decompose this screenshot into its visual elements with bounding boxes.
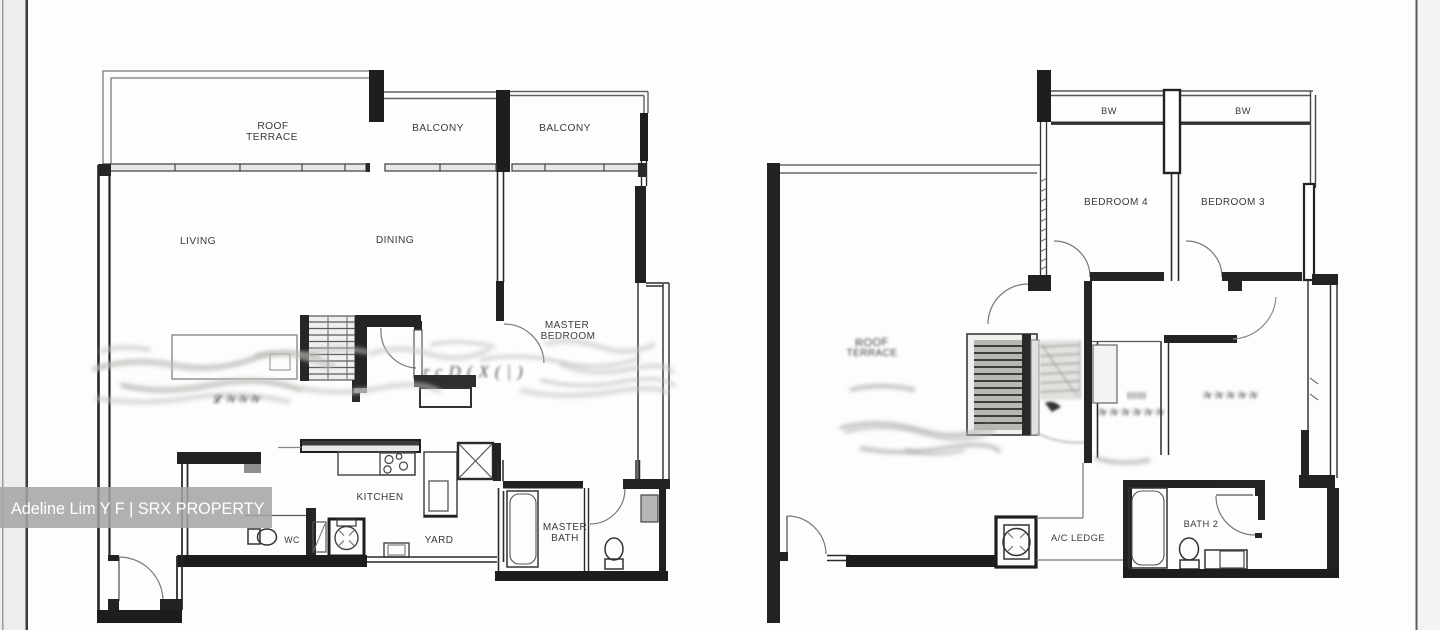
svg-text:DINING: DINING [376,235,414,246]
svg-text:Adeline Lim Y F | SRX PROPERTY: Adeline Lim Y F | SRX PROPERTY [11,500,265,518]
svg-text:IIIIII: IIIIII [1127,391,1147,402]
svg-text:rcD(X(|): rcD(X(|) [423,362,529,381]
svg-text:𝒲𝒲𝒲𝒲𝒲𝒲: 𝒲𝒲𝒲𝒲𝒲𝒲 [1097,408,1166,419]
svg-text:𝓛 𝒲𝒲𝒲: 𝓛 𝒲𝒲𝒲 [213,393,262,406]
svg-text:ROOF: ROOF [257,121,288,132]
svg-text:BATH: BATH [551,533,579,544]
svg-text:TERRACE: TERRACE [847,348,898,359]
svg-text:TERRACE: TERRACE [246,132,298,143]
svg-text:BEDROOM 3: BEDROOM 3 [1201,197,1265,208]
svg-text:BEDROOM 4: BEDROOM 4 [1084,197,1148,208]
svg-text:𝒲𝒲𝒲𝒲𝒲: 𝒲𝒲𝒲𝒲𝒲 [1202,391,1260,402]
svg-text:BW: BW [1235,106,1251,116]
svg-text:BW: BW [1101,106,1117,116]
svg-text:WC: WC [284,535,300,545]
svg-text:MASTER: MASTER [545,320,589,331]
svg-text:KITCHEN: KITCHEN [356,492,403,503]
svg-text:MASTER: MASTER [543,522,587,533]
svg-text:BATH 2: BATH 2 [1184,518,1219,529]
svg-text:YARD: YARD [425,535,454,546]
svg-text:A/C LEDGE: A/C LEDGE [1051,532,1105,543]
svg-text:BALCONY: BALCONY [412,123,464,134]
svg-text:LIVING: LIVING [180,236,216,247]
svg-text:BALCONY: BALCONY [539,123,591,134]
